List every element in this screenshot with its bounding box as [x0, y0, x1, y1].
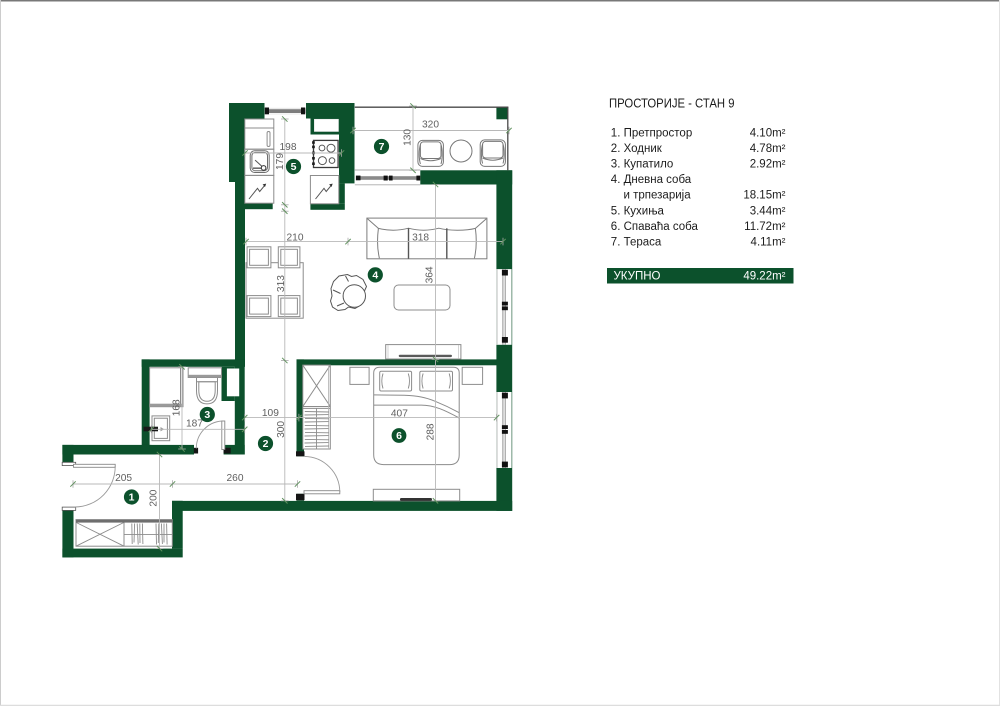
svg-text:49.22m²: 49.22m² [743, 271, 785, 283]
svg-text:288: 288 [425, 423, 436, 440]
svg-text:318: 318 [412, 232, 429, 243]
svg-text:130: 130 [402, 129, 413, 146]
svg-text:1: 1 [129, 492, 135, 504]
svg-text:2: 2 [263, 438, 269, 450]
svg-text:2.92m²: 2.92m² [750, 159, 786, 171]
svg-text:313: 313 [276, 275, 287, 292]
svg-text:109: 109 [262, 408, 279, 419]
svg-text:7: 7 [379, 141, 385, 153]
svg-text:187: 187 [186, 418, 203, 429]
svg-text:18.15m²: 18.15m² [743, 190, 785, 202]
svg-text:11.72m²: 11.72m² [744, 221, 786, 233]
svg-text:3: 3 [204, 409, 210, 421]
svg-text:4.10m²: 4.10m² [750, 127, 786, 139]
svg-text:407: 407 [391, 408, 408, 419]
svg-text:4. Дневна соба: 4. Дневна соба [611, 174, 692, 186]
svg-text:179: 179 [275, 153, 286, 170]
svg-text:300: 300 [276, 421, 287, 438]
svg-text:4: 4 [372, 270, 378, 282]
svg-text:6. Спаваћа соба: 6. Спаваћа соба [611, 221, 699, 233]
svg-text:3.44m²: 3.44m² [750, 205, 786, 217]
svg-text:5. Кухиња: 5. Кухиња [611, 205, 665, 217]
svg-text:4.11m²: 4.11m² [751, 237, 786, 249]
svg-text:205: 205 [115, 473, 132, 484]
svg-text:ПРОСТОРИЈЕ - СТАН 9: ПРОСТОРИЈЕ - СТАН 9 [609, 96, 735, 111]
svg-text:5: 5 [291, 161, 297, 173]
svg-text:и трпезарија: и трпезарија [624, 190, 692, 202]
svg-text:УКУПНО: УКУПНО [614, 271, 661, 283]
svg-text:168: 168 [172, 399, 183, 416]
svg-text:6: 6 [396, 430, 402, 442]
svg-text:198: 198 [280, 142, 297, 153]
svg-text:200: 200 [148, 489, 159, 506]
svg-text:3. Купатило: 3. Купатило [611, 159, 674, 171]
svg-text:320: 320 [422, 119, 439, 130]
svg-text:210: 210 [287, 232, 304, 243]
svg-text:4.78m²: 4.78m² [750, 143, 786, 155]
svg-text:7. Тераса: 7. Тераса [611, 237, 662, 249]
svg-text:2. Ходник: 2. Ходник [611, 143, 663, 155]
svg-text:260: 260 [227, 473, 244, 484]
svg-text:1. Претпростор: 1. Претпростор [611, 127, 692, 139]
svg-text:364: 364 [425, 266, 436, 283]
